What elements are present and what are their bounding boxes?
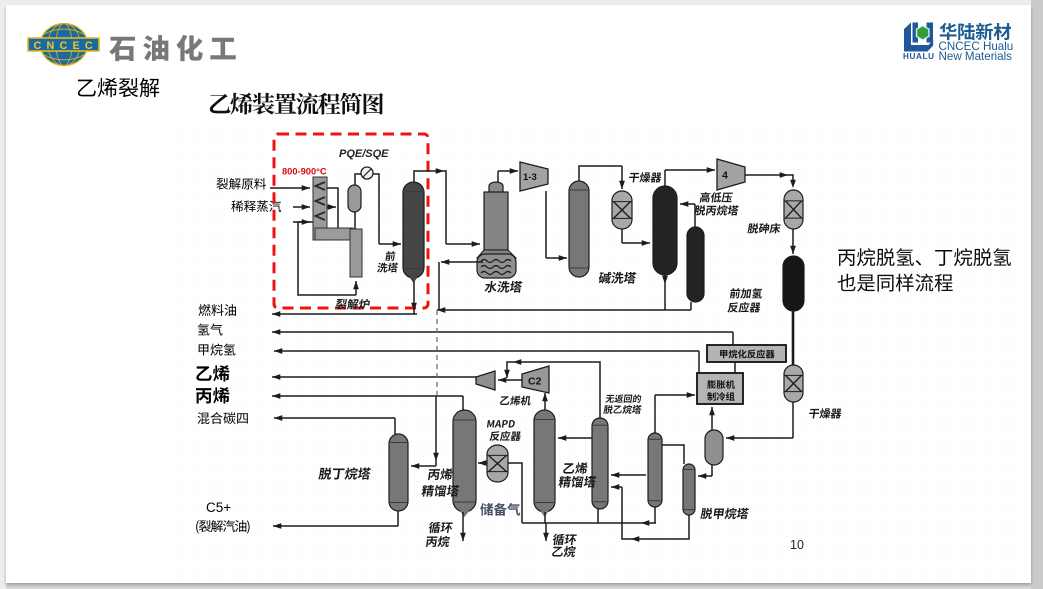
svg-text:PQE/SQE: PQE/SQE bbox=[339, 148, 389, 160]
svg-text:800-900°C: 800-900°C bbox=[282, 167, 327, 177]
svg-text:CNCEC: CNCEC bbox=[34, 40, 98, 52]
svg-text:4: 4 bbox=[722, 170, 728, 182]
svg-text:C5+: C5+ bbox=[206, 500, 231, 515]
svg-text:10: 10 bbox=[790, 538, 804, 552]
svg-text:HUALU: HUALU bbox=[903, 52, 935, 61]
svg-text:New Materials: New Materials bbox=[939, 50, 1013, 63]
svg-text:C2: C2 bbox=[528, 376, 542, 388]
svg-text:1-3: 1-3 bbox=[523, 172, 537, 183]
